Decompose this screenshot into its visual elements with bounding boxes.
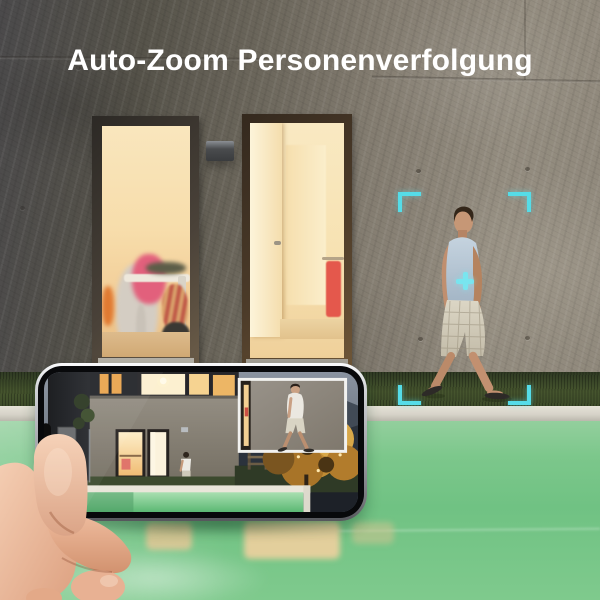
fingernail [100,575,118,587]
man-front-leg [473,356,489,388]
wall-lamp [206,141,234,161]
doorway-interior [250,123,344,358]
tracking-bracket-top-right-icon [508,192,531,212]
thumb-highlight [44,448,72,496]
items-on-table [146,262,186,274]
walking-man [405,200,525,405]
lit-window-living-room [92,116,199,366]
hallway-wall [286,145,326,305]
interior-floor [280,319,344,339]
hand-holding-phone [0,350,400,600]
man-front-arm [473,246,482,307]
page-title: Auto-Zoom Personenverfolgung [0,44,600,78]
wall-tie-hole [416,169,421,173]
tracking-bracket-top-left-icon [398,192,421,212]
towel-bar [322,257,344,260]
white-door-panel [250,123,282,337]
red-towel [326,261,341,317]
wall-tie-hole [525,336,530,340]
door-handle [274,241,281,245]
man-neck [458,230,467,238]
tracking-bracket-bottom-right-icon [508,385,531,405]
tracking-bracket-bottom-left-icon [398,385,421,405]
man-back-leg [435,356,451,386]
orange-cushion [102,286,114,326]
window-glass [102,126,190,357]
wall-tie-hole [20,206,25,210]
wall-tie-hole [525,167,530,171]
middle-fingertip [71,570,125,600]
marketing-scene: Auto-Zoom Personenverfolgung [0,0,600,600]
crosshair-icon [463,272,468,290]
lit-open-door [242,114,352,366]
